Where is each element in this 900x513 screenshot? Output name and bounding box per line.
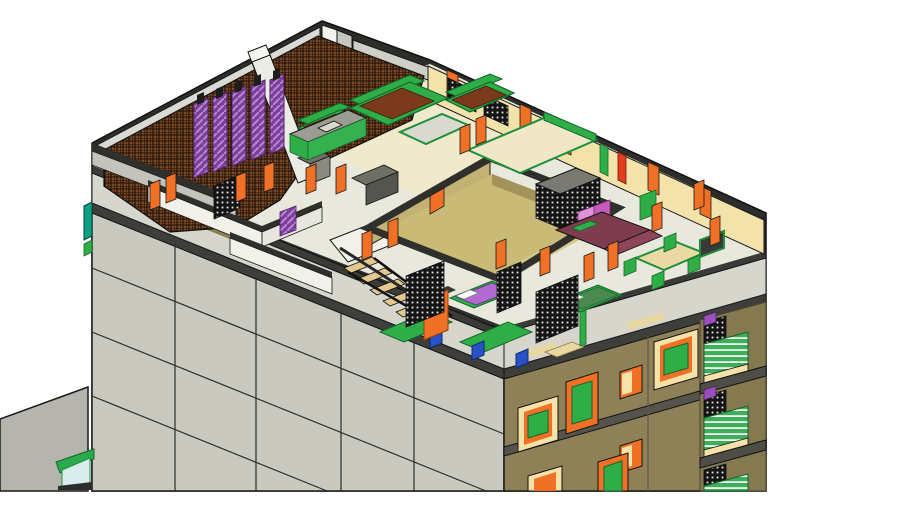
green-post: [580, 310, 586, 346]
door-jamb: [362, 230, 372, 260]
door-jamb: [540, 246, 550, 276]
door-jamb: [476, 115, 486, 145]
window-small-reveal: [622, 371, 632, 395]
ne-wall-red-door: [618, 152, 626, 184]
door-jamb: [264, 162, 274, 192]
pergola-screen: [194, 98, 208, 178]
door-jamb: [388, 218, 398, 248]
door-jamb: [694, 180, 704, 210]
window-plant: [572, 381, 592, 424]
door-jamb: [584, 252, 594, 282]
facade-teal-fixture: [84, 240, 92, 256]
door-jamb: [306, 164, 316, 194]
pergola-screen: [270, 74, 284, 154]
door-jamb: [608, 241, 618, 271]
scene-shapes: [0, 21, 766, 491]
pergola-screen: [251, 80, 265, 160]
door-jamb: [336, 164, 346, 194]
door-jamb: [150, 180, 160, 210]
door-jamb: [496, 239, 506, 269]
pergola-screen: [213, 92, 227, 172]
building-axonometric-view: [0, 0, 900, 513]
door-jamb: [710, 216, 720, 246]
ne-wall-column: [648, 162, 659, 195]
door-jamb: [652, 202, 662, 232]
screenshot-canvas: [0, 0, 900, 513]
door-jamb: [236, 172, 246, 202]
facade-teal-fixture: [84, 202, 92, 240]
ne-wall-green-door: [600, 144, 608, 176]
door-jamb: [166, 173, 176, 203]
pergola-screen: [232, 86, 246, 166]
door-jamb: [460, 124, 470, 154]
